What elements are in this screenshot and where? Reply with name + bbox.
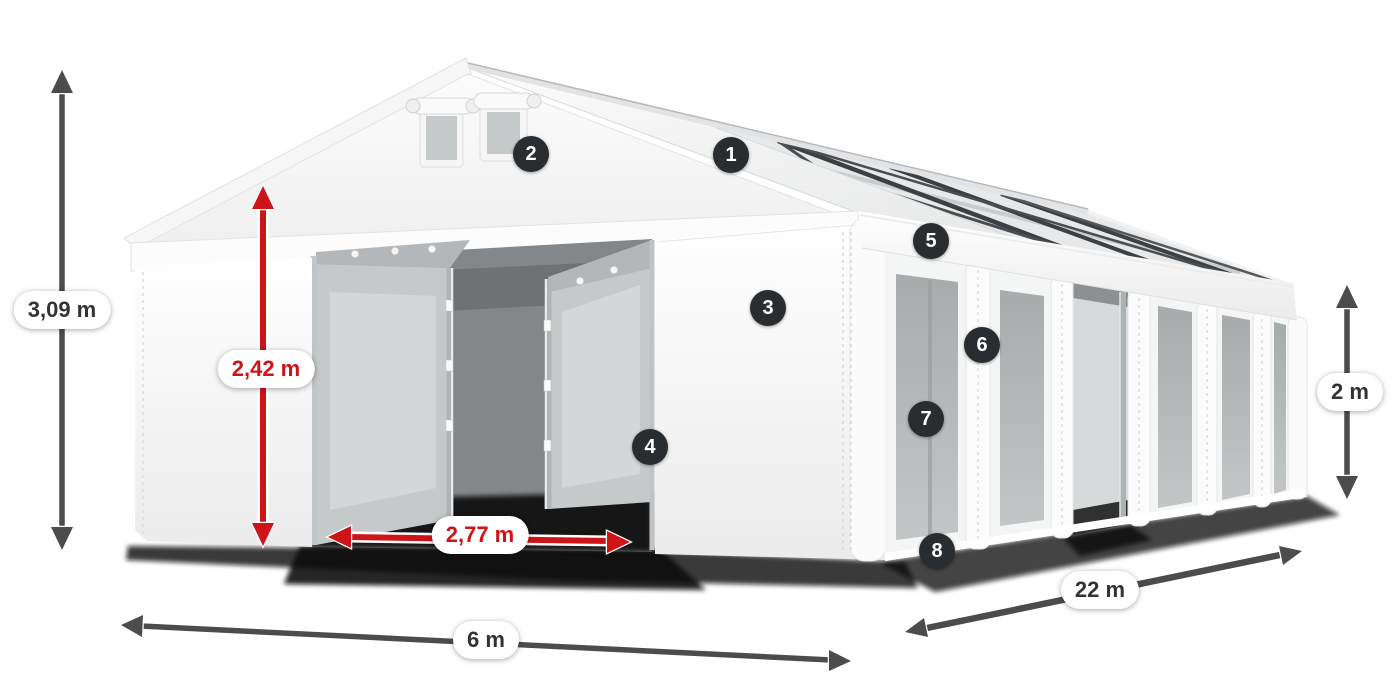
- side-open-bay: [1073, 281, 1128, 536]
- callout-badge-2[interactable]: 2: [513, 136, 549, 172]
- tent-dimension-diagram: 3,09 m 2,42 m 2,77 m 6 m 22 m 2 m 1 2 3 …: [0, 0, 1400, 700]
- callout-badge-5[interactable]: 5: [913, 223, 949, 259]
- dimension-label-door-width: 2,77 m: [432, 516, 529, 554]
- callout-badge-3[interactable]: 3: [750, 290, 786, 326]
- callout-badge-8[interactable]: 8: [919, 533, 955, 569]
- dimension-label-total-height: 3,09 m: [14, 291, 111, 329]
- dimension-label-gable-width: 6 m: [453, 621, 519, 659]
- dimension-label-length: 22 m: [1061, 571, 1139, 609]
- callout-badge-4[interactable]: 4: [632, 429, 668, 465]
- callout-badge-6[interactable]: 6: [964, 327, 1000, 363]
- front-wall-right: [655, 218, 886, 561]
- front-wall-left: [135, 258, 312, 547]
- callout-badge-1[interactable]: 1: [713, 137, 749, 173]
- dimension-label-side-height: 2 m: [1317, 373, 1383, 411]
- door-leaf-left: [314, 240, 470, 545]
- dimension-label-door-height: 2,42 m: [218, 350, 315, 388]
- callout-badge-7[interactable]: 7: [908, 401, 944, 437]
- tent-illustration: [0, 0, 1400, 700]
